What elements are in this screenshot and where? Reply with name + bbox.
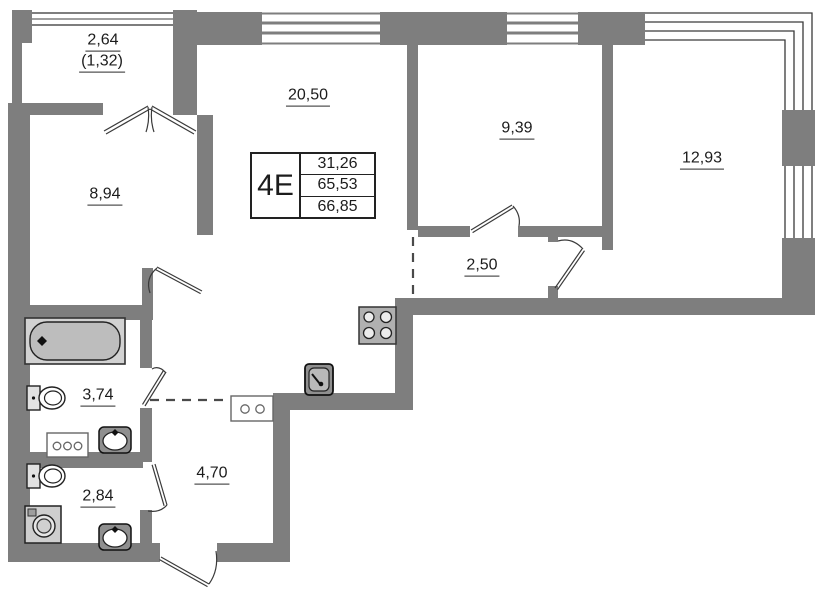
wc-door-icon (148, 464, 167, 511)
walls (8, 10, 815, 562)
room-mid-window-icon (507, 12, 578, 45)
wall (285, 393, 413, 410)
bathroom-area-label: 3,74 (80, 388, 115, 407)
wall (8, 543, 160, 562)
balcony-window-icon (32, 12, 173, 26)
washbasin-icon (99, 524, 131, 550)
room-left-door-icon (149, 267, 202, 294)
living-window-icon (262, 12, 380, 45)
corridor-area-label: 2,50 (464, 258, 499, 277)
wall (380, 12, 507, 45)
unit-area-living: 31,26 (301, 154, 374, 174)
wall (197, 12, 262, 45)
wall (12, 43, 22, 105)
room-mid-door-icon (471, 205, 519, 233)
living-area-label: 20,50 (286, 88, 330, 107)
wall (602, 43, 613, 250)
hallway-area-label: 4,70 (194, 466, 229, 485)
toilet-icon (27, 386, 65, 410)
windows (32, 12, 814, 238)
washing-machine-icon (25, 506, 61, 543)
wall (140, 510, 152, 545)
wall (548, 286, 558, 300)
kitchen-counter-icon (231, 396, 273, 421)
room-right-door-icon (555, 240, 585, 290)
unit-areas: 31,26 65,53 66,85 (301, 154, 374, 217)
unit-label: 4E (252, 154, 301, 217)
toilet-icon (27, 464, 65, 488)
wall (782, 110, 815, 166)
wall (395, 298, 815, 315)
wall (518, 226, 610, 237)
corner-window-icon (645, 13, 812, 110)
floor-plan-drawing (0, 0, 825, 600)
wall (197, 115, 213, 235)
wall (12, 10, 32, 43)
unit-info-box: 4E 31,26 65,53 66,85 (250, 152, 376, 219)
unit-area-total: 66,85 (301, 196, 374, 217)
wall (173, 10, 197, 115)
wall (140, 320, 152, 368)
floor-plan: 2,64 (1,32) 8,94 20,50 9,39 12,93 2,50 3… (0, 0, 825, 600)
wc-area-label: 2,84 (80, 489, 115, 508)
fixtures (25, 307, 396, 550)
balcony-area-label: 2,64 (85, 33, 120, 52)
wall (578, 12, 645, 45)
washbasin-icon (99, 427, 131, 453)
wall (418, 226, 470, 237)
room-mid-area-label: 9,39 (499, 121, 534, 140)
room-right-area-label: 12,93 (680, 151, 724, 170)
kitchen-sink-icon (305, 364, 333, 395)
room-left-area-label: 8,94 (87, 187, 122, 206)
wall (12, 103, 103, 115)
wall (548, 233, 558, 242)
wall (407, 43, 418, 230)
bathtub-icon (25, 318, 125, 364)
wall (273, 393, 290, 547)
cabinet-icon (47, 433, 88, 457)
balcony-reduced-label: (1,32) (79, 54, 125, 73)
unit-area-heated: 65,53 (301, 174, 374, 195)
right-window-icon (783, 166, 814, 238)
entrance-door-icon (160, 551, 217, 587)
stove-icon (359, 307, 396, 344)
